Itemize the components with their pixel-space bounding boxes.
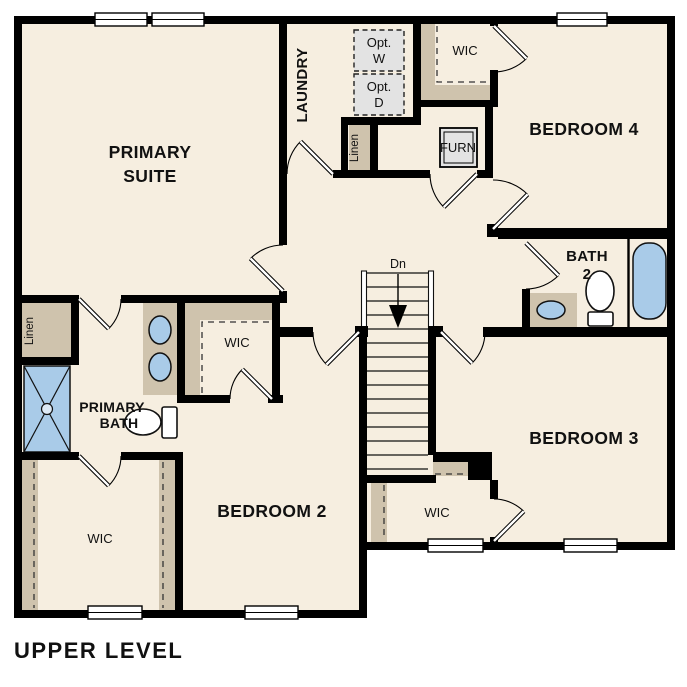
room-label-wic-bedroom2: WIC	[87, 531, 112, 546]
window-icon	[245, 606, 298, 619]
window-icon	[95, 13, 147, 26]
wic-bedroom4-shelf-left	[421, 24, 435, 85]
window-icon	[428, 539, 483, 552]
label-opt-washer-line1: Opt.	[367, 35, 392, 50]
stair-rail-left	[362, 271, 367, 327]
label-opt-dryer-line2: D	[374, 95, 383, 110]
label-furnace: FURN	[440, 140, 476, 155]
room-label-primary-suite-line1: PRIMARY	[109, 142, 192, 162]
window-icon	[564, 539, 617, 552]
wic-bedroom2-shelf-left	[22, 460, 38, 610]
sink-icon	[149, 353, 171, 381]
stair-rail-right	[429, 271, 434, 327]
room-label-primary-suite-line2: SUITE	[123, 166, 177, 186]
label-opt-dryer-line1: Opt.	[367, 79, 392, 94]
floorplan-page: PRIMARY SUITE LAUNDRY Opt. W Opt. D WIC …	[0, 0, 687, 687]
room-label-wic-bedroom4: WIC	[452, 43, 477, 58]
label-stairs-down: Dn	[390, 257, 406, 271]
room-label-primary-bath-line1: PRIMARY	[79, 399, 145, 415]
room-label-primary-bath-line2: BATH	[100, 415, 139, 431]
shower-icon	[24, 366, 70, 452]
label-linen-hall: Linen	[349, 134, 361, 162]
window-icon	[152, 13, 204, 26]
floorplan-upper-level: PRIMARY SUITE LAUNDRY Opt. W Opt. D WIC …	[0, 0, 687, 687]
page-title: UPPER LEVEL	[14, 638, 183, 663]
wic-bedroom2-shelf-right	[159, 460, 175, 610]
sink-icon	[149, 316, 171, 344]
sink-icon	[537, 301, 565, 319]
room-label-laundry: LAUNDRY	[294, 48, 311, 123]
room-label-bedroom3: BEDROOM 3	[529, 428, 639, 448]
room-label-wic-primary: WIC	[224, 335, 249, 350]
room-label-bedroom2: BEDROOM 2	[217, 501, 327, 521]
room-label-bath2-line1: BATH	[566, 248, 608, 265]
label-linen-primary: Linen	[24, 317, 36, 345]
wic-primary-shelf-left	[185, 303, 200, 395]
window-icon	[88, 606, 142, 619]
window-icon	[557, 13, 607, 26]
room-label-bath2-line2: 2	[583, 266, 592, 283]
room-label-bedroom4: BEDROOM 4	[529, 119, 639, 139]
label-opt-washer-line2: W	[373, 51, 386, 66]
wic-bedroom4-shelf-bottom	[421, 85, 490, 100]
room-label-wic-bedroom3: WIC	[424, 505, 449, 520]
